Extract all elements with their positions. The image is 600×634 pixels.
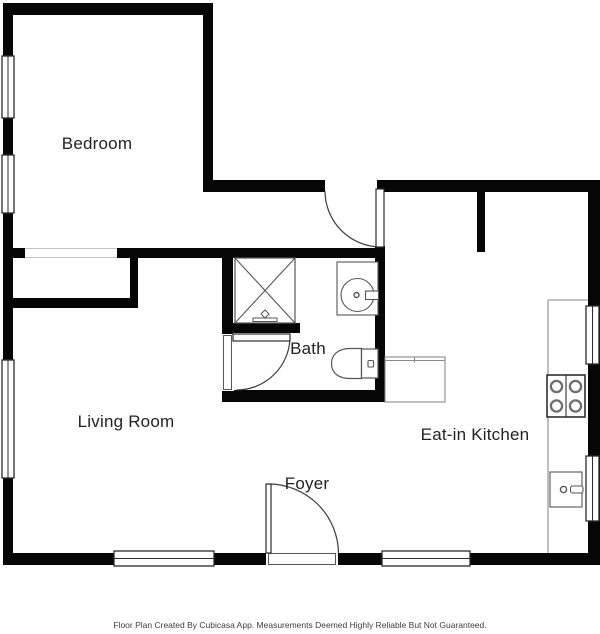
fixture-bath-sink-faucet — [366, 291, 379, 300]
fixture-toilet-button — [368, 361, 374, 368]
fixture-stove-burner — [551, 400, 562, 411]
entry-door-gap — [325, 179, 377, 193]
wall-bath-bottom — [222, 390, 385, 402]
entry-door-swing-arc — [325, 191, 381, 247]
bath-door-gap-jamb — [224, 336, 232, 390]
fixture-kitchen-peninsula — [385, 357, 445, 402]
wall-closet-bottom — [3, 298, 138, 308]
floor-plan-canvas: Bedroom Living Room Bath Foyer Eat-in Ki… — [0, 0, 600, 634]
entry-door-leaf — [376, 189, 384, 247]
wall-shower-bottom — [222, 323, 300, 333]
foyer-door-gap-jamb — [269, 554, 336, 565]
room-label-bath: Bath — [290, 339, 326, 359]
fixture-stove-burner — [570, 400, 581, 411]
wall-exterior-top — [3, 3, 213, 15]
bath-door-swing-arc — [237, 337, 291, 390]
footer-disclaimer: Floor Plan Created By Cubicasa App. Meas… — [113, 620, 486, 630]
fixture-stove-burner — [570, 381, 581, 392]
room-label-eat-in-kitchen: Eat-in Kitchen — [421, 425, 530, 445]
fixture-stove-burner — [551, 381, 562, 392]
fixture-kitchen-sink-faucet — [571, 486, 584, 493]
wall-closet-stub — [130, 258, 138, 298]
room-label-foyer: Foyer — [285, 474, 329, 494]
wall-kitchen-stub — [477, 191, 485, 252]
fixture-toilet-bowl — [332, 349, 362, 379]
foyer-door-swing-arc — [269, 484, 339, 554]
wall-upper-horizontal — [203, 180, 600, 192]
fixture-kitchen-sink-drain — [560, 486, 566, 492]
room-label-living-room: Living Room — [78, 412, 175, 432]
floor-plan-drawing — [0, 0, 600, 634]
bath-door-leaf — [233, 334, 290, 341]
room-label-bedroom: Bedroom — [62, 134, 132, 154]
wall-bedroom-right — [203, 3, 213, 191]
foyer-door-leaf — [266, 484, 271, 553]
